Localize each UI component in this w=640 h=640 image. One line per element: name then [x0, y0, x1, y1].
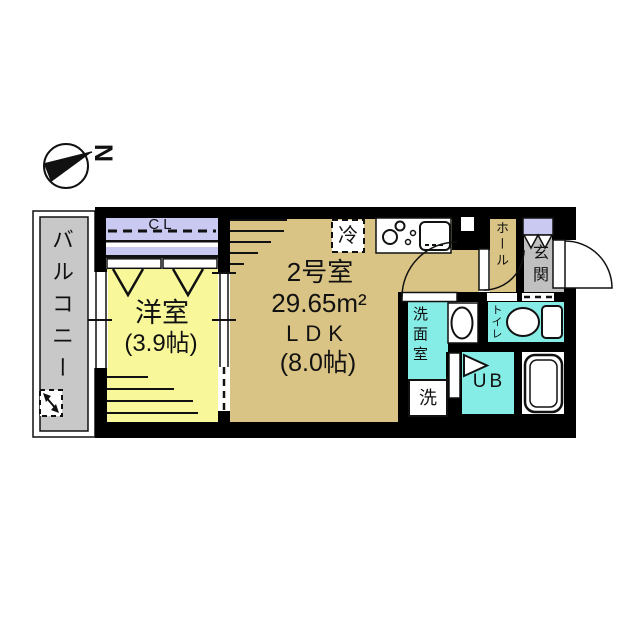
unit-bath-label: UB [473, 372, 505, 391]
washing-machine-label: 洗 [419, 389, 437, 407]
floor-plan-drawing [0, 0, 640, 640]
ldk-size: (8.0帖) [280, 351, 356, 376]
closet-door-panel [163, 259, 217, 269]
hall-label: ホール [495, 221, 508, 269]
kitchen-counter [376, 218, 451, 253]
refrigerator-label: 冷 [338, 226, 358, 246]
ldk-area: 29.65m² [271, 290, 366, 316]
closet-label: CL [148, 217, 175, 232]
shoe-cabinet [523, 218, 553, 235]
compass-icon [44, 144, 92, 188]
ldk-unit-number: 2号室 [287, 259, 353, 285]
washbasin-icon [448, 303, 478, 343]
washroom-label: 洗面室 [412, 306, 427, 366]
toilet-label: トイレ [490, 304, 501, 340]
balcony-label: バルコニー [50, 228, 72, 388]
bath-door-opening [449, 353, 460, 398]
floor-plan: N バルコニー CL 洋室 (3.9帖) 2号室 29.65m² LDK (8.… [0, 0, 640, 640]
front-door-leaf [553, 240, 565, 288]
balcony-drain-icon [40, 390, 62, 416]
pipe-space [461, 217, 474, 231]
compass-north-label: N [89, 140, 117, 166]
western-room-label: 洋室 [135, 300, 189, 327]
closet-door-panel [107, 259, 161, 269]
ldk-label: LDK [286, 323, 350, 345]
western-room-size: (3.9帖) [124, 332, 197, 356]
entrance-label: 玄関 [530, 244, 546, 288]
